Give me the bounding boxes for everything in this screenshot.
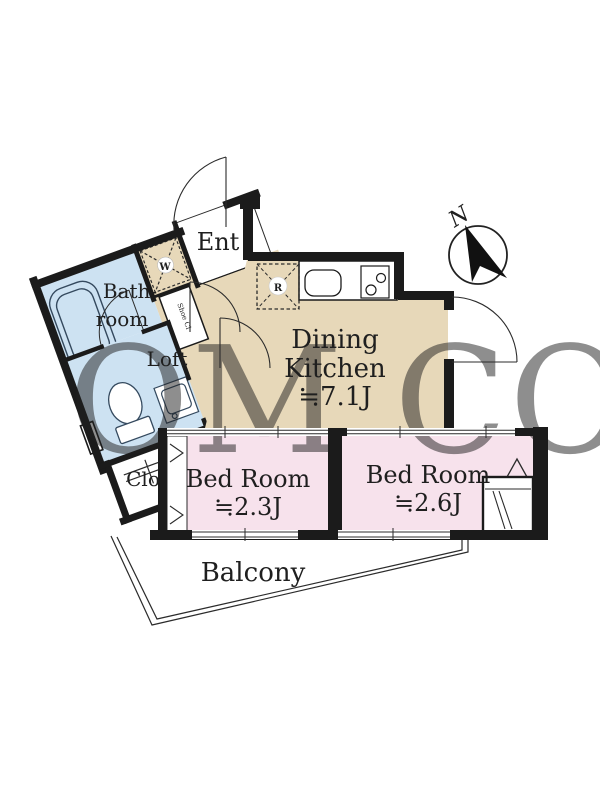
floorplan-svg: OM CO Ent [0,0,600,800]
label-bedroom-2-area: ≒2.6J [394,489,462,517]
label-closet: Clo [126,467,160,491]
label-dining: Dining [291,325,379,355]
floorplan-page: OM CO Ent [0,0,600,800]
label-refrigerator: R [274,283,283,294]
label-loft: Loft [147,347,188,371]
wall [328,428,342,537]
window-bedroom-2 [338,530,450,539]
label-entrance: Ent [197,228,240,256]
label-balcony: Balcony [201,558,306,588]
label-bathroom-line2: room [96,307,149,331]
wall [444,291,454,310]
wall [243,196,253,260]
label-bedroom-1: Bed Room [186,465,311,493]
kitchen-sink-icon [305,270,341,296]
label-bedroom-2: Bed Room [366,461,491,489]
label-bathroom-line1: Bath- [103,279,157,303]
sliding-door-2 [347,428,515,436]
label-kitchen: Kitchen [284,354,386,384]
wall [248,252,400,261]
wall [533,427,548,540]
label-washer: W [158,262,171,273]
label-dk-area: ≒7.1J [298,382,372,412]
label-bedroom-1-area: ≒2.3J [214,493,282,521]
sliding-door-1 [167,428,328,436]
wall [444,359,454,435]
